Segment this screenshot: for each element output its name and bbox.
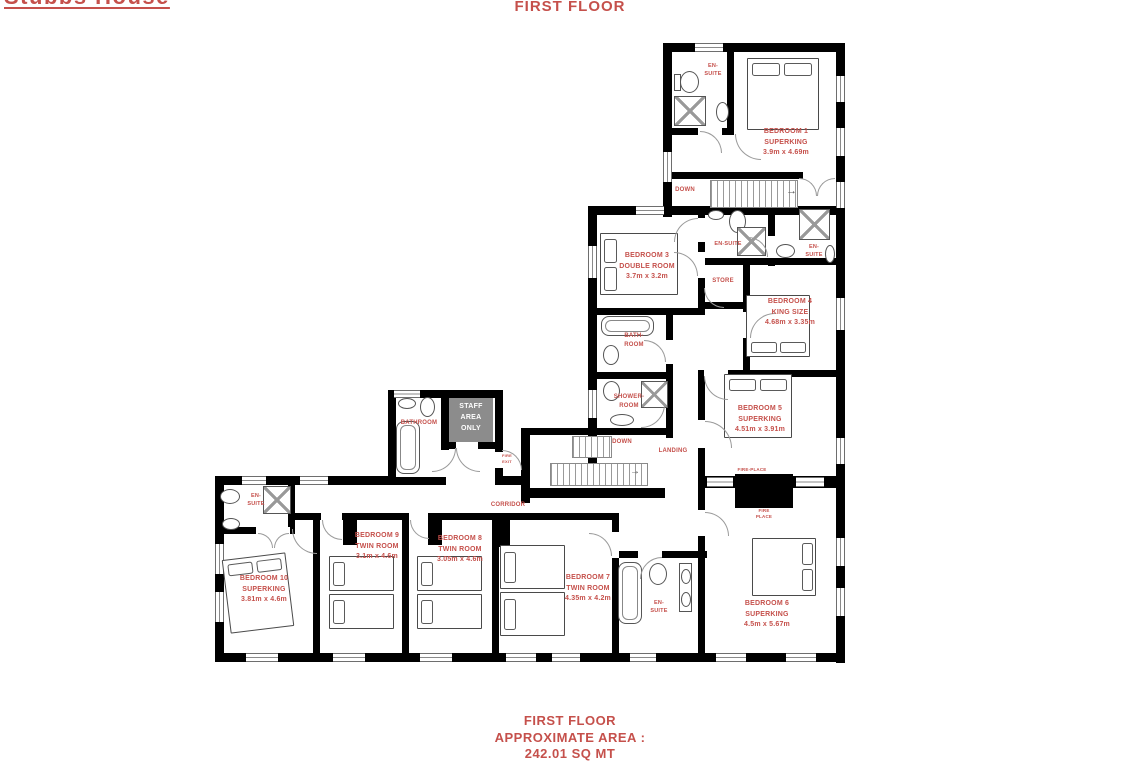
room-type: KING SIZE [752,308,828,319]
stair-arrow-icon: → [786,185,797,197]
door-arc [640,557,662,579]
fireplace-label: FIRE-PLACE [724,467,780,473]
pillow [780,342,806,353]
staff-area-line: AREA [449,413,493,424]
window [836,438,845,464]
door-arc [799,178,817,196]
door-opening [698,218,705,242]
door-arc [704,376,728,400]
room-name: BEDROOM 10 [228,574,300,585]
door-opening [698,420,705,448]
bathtub [396,421,420,474]
window [796,477,824,487]
room-type: TWIN ROOM [424,545,496,556]
window [707,477,733,487]
window [588,246,597,278]
sink [398,398,416,409]
room-type: SUPERKING [730,610,804,621]
bedroom-7-label: BEDROOM 7 TWIN ROOM 4.35m x 4.2m [552,573,624,605]
sink [716,102,729,122]
footer-area-title: APPROXIMATE AREA : [0,730,1140,747]
window [394,390,420,398]
room-name: BEDROOM 1 [750,127,822,138]
wall [663,43,845,52]
fireplace-label: FIRE PLACE [744,508,784,520]
pillow [421,562,433,586]
bed [752,538,816,596]
pillow [333,600,345,624]
door-arc [705,512,729,536]
window [836,538,845,566]
staircase-top [710,180,798,208]
window [588,390,597,418]
bed [329,594,394,629]
room-name: BEDROOM 6 [730,599,804,610]
toilet [776,244,795,258]
store-label: STORE [700,277,746,286]
window [300,476,328,485]
room-name: BEDROOM 9 [340,531,414,542]
room-type: SUPERKING [729,415,791,426]
door-arc [322,520,342,540]
window [552,653,580,662]
window [242,476,266,485]
stair-arrow-icon: → [630,466,640,477]
shower [674,96,706,126]
landing-label: LANDING [650,447,696,456]
door-opening [612,532,619,558]
window [636,206,664,215]
door-opening [321,513,342,520]
floor-title: FIRST FLOOR [0,0,1140,15]
down-label: DOWN [602,438,642,447]
pillow [504,599,516,630]
pillow [256,558,282,573]
bedroom-6-label: BEDROOM 6 SUPERKING 4.5m x 5.67m [730,599,804,631]
window [506,653,536,662]
room-type: TWIN ROOM [552,584,624,595]
footer-area-summary: FIRST FLOOR APPROXIMATE AREA : 242.01 SQ… [0,713,1140,763]
bed [747,58,819,130]
room-name: BEDROOM 4 [752,297,828,308]
pillow [333,562,345,586]
room-dims: 3.9m x 4.69m [750,148,822,159]
door-arc [817,178,835,196]
room-type: DOUBLE ROOM [614,262,680,273]
room-name: BEDROOM 5 [729,404,791,415]
room-name: BEDROOM 3 [614,251,680,262]
shower-room-label: SHOWER- ROOM [600,393,658,411]
door-arc [456,448,480,472]
sink [708,210,724,220]
bedroom-1-label: BEDROOM 1 SUPERKING 3.9m x 4.69m [750,127,822,159]
chimney-breast [735,474,793,508]
bedroom-5-label: BEDROOM 5 SUPERKING 4.51m x 3.91m [729,404,791,436]
sink [681,569,691,584]
staff-area-line: ONLY [449,424,493,435]
shower [799,209,830,240]
pillow [760,379,787,391]
window [836,298,845,330]
wall [496,513,510,547]
ensuite-10-label: EN- SUITE [238,492,274,509]
bedroom-4-label: BEDROOM 4 KING SIZE 4.68m x 3.35m [752,297,828,329]
wall [530,488,665,498]
window [333,653,365,662]
bedroom-10-label: BEDROOM 10 SUPERKING 3.81m x 4.6m [228,574,300,606]
ensuite-1-label: EN- SUITE [694,62,732,79]
window [695,43,723,52]
pillow [752,63,780,76]
bedroom-9-label: BEDROOM 9 TWIN ROOM 3.1m x 4.6m [340,531,414,563]
sink [222,518,240,530]
pillow [504,552,516,583]
wall [388,390,396,485]
door-arc [274,533,289,548]
staff-area-box: STAFF AREA ONLY [449,398,493,442]
bathroom-label: BATH- ROOM [608,332,660,350]
pillow [729,379,756,391]
room-dims: 3.7m x 3.2m [614,272,680,283]
bed [417,594,482,629]
door-arc [432,448,456,472]
room-dims: 4.51m x 3.91m [729,425,791,436]
bedroom-8-label: BEDROOM 8 TWIN ROOM 3.05m x 4.6m [424,534,496,566]
room-dims: 3.1m x 4.6m [340,552,414,563]
toilet [220,489,240,504]
door-opening [768,236,775,258]
pillow [751,342,777,353]
sink [681,592,691,607]
staff-bathroom-label: BATHROOM [394,419,444,428]
pillow [421,600,433,624]
room-type: SUPERKING [228,585,300,596]
wall [698,476,705,662]
wall [495,468,503,485]
room-dims: 4.68m x 3.35m [752,318,828,329]
sink [610,414,634,426]
footer-area-value: 242.01 SQ MT [0,746,1140,763]
door-opening [698,510,705,536]
door-arc [258,533,273,548]
window [420,653,452,662]
window [246,653,278,662]
door-arc [674,218,698,242]
floorplan-page: { "header": { "property_name": "Stubbs H… [0,0,1140,760]
window [630,653,656,662]
room-name: BEDROOM 7 [552,573,624,584]
ensuite-4-label: EN- SUITE [796,243,832,260]
door-opening [409,513,428,520]
wall [698,302,750,309]
room-dims: 3.81m x 4.6m [228,595,300,606]
window [716,653,746,662]
door-opening [666,340,673,364]
room-dims: 3.05m x 4.6m [424,555,496,566]
toilet-cistern [674,74,681,91]
down-label: DOWN [666,186,704,195]
pillow [802,569,813,591]
bedroom-3-label: BEDROOM 3 DOUBLE ROOM 3.7m x 3.2m [614,251,680,283]
room-type: SUPERKING [750,138,822,149]
wall [521,428,673,435]
door-opening [698,252,705,278]
corridor-label: CORRIDOR [476,501,540,510]
door-arc [589,533,612,556]
wall [521,428,530,503]
wall [388,477,446,485]
window [836,128,845,156]
footer-floor: FIRST FLOOR [0,713,1140,730]
room-dims: 4.35m x 4.2m [552,594,624,605]
wall [588,308,705,315]
door-arc [292,529,317,554]
room-dims: 4.5m x 5.67m [730,620,804,631]
staff-area-line: STAFF [449,402,493,413]
window [836,588,845,616]
window [836,76,845,102]
window [786,653,816,662]
window [663,152,672,182]
room-type: TWIN ROOM [340,542,414,553]
pillow [784,63,812,76]
ensuite-3-label: EN-SUITE [700,240,756,248]
window [836,182,845,208]
fire-exit-label: FIRE EXIT [498,453,516,464]
wall [663,172,803,179]
ensuite-7-label: EN- SUITE [638,599,680,616]
wall [588,372,673,379]
room-name: BEDROOM 8 [424,534,496,545]
pillow [802,543,813,565]
window [215,592,224,622]
toilet [420,397,435,417]
